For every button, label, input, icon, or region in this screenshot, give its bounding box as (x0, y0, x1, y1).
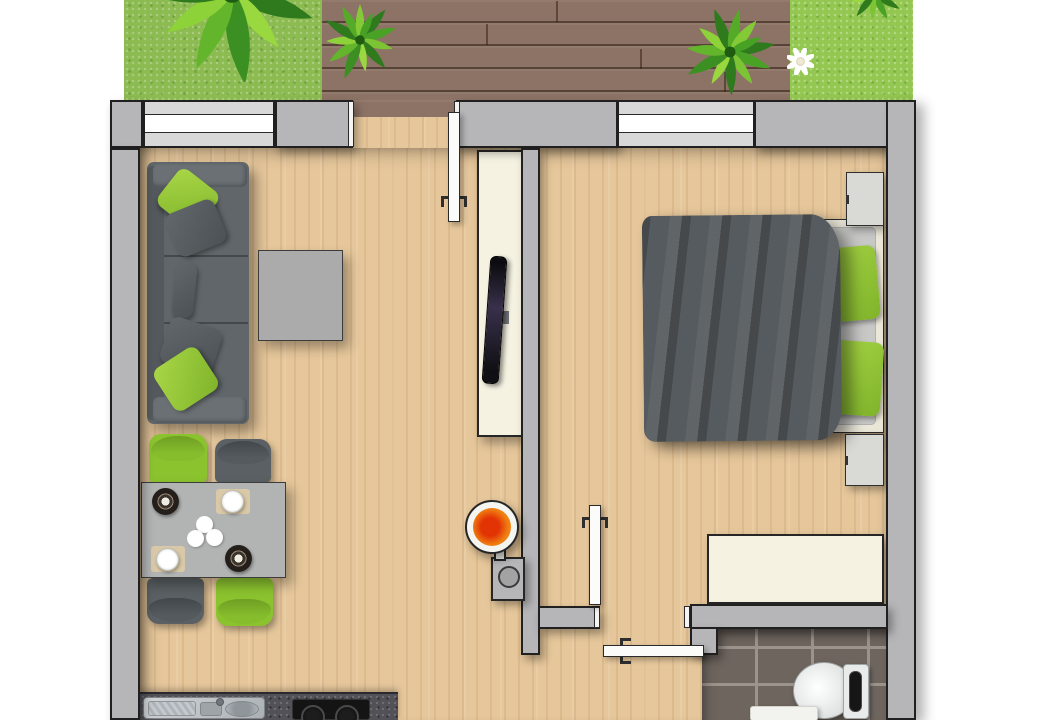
bedroom-window (617, 100, 755, 148)
cooktop-burner (335, 705, 359, 720)
floor-plan-canvas (0, 0, 1040, 720)
terrace-door-jamb (348, 101, 354, 147)
wall-stub-hall (538, 606, 600, 629)
place-setting-dark (225, 545, 252, 572)
stove-base-cap (498, 566, 520, 588)
chair-backrest (218, 599, 270, 624)
sink-bowl-round (225, 701, 259, 717)
nightstand-bottom (845, 434, 884, 486)
deck-plank-seam (556, 1, 558, 22)
terrace-door-leaf (448, 112, 460, 222)
wall-top-mid (275, 100, 353, 148)
living-room-window (143, 100, 275, 148)
bedroom-door-leaf (589, 505, 601, 605)
bedroom-door-jamb (684, 606, 690, 628)
sofa-seat-seam (164, 255, 248, 257)
nightstand-handle (846, 195, 849, 204)
window-sill-outer (145, 102, 273, 115)
chair-backrest (217, 441, 269, 464)
wall-right-exterior (886, 100, 916, 720)
stove-fire-glow (473, 508, 511, 546)
deck-plank-seam (486, 24, 488, 45)
terrace-threshold-deck (352, 100, 458, 117)
place-setting-white (156, 548, 179, 571)
wall-top-center (456, 100, 618, 148)
sink-drainboard (148, 701, 196, 716)
sink-faucet (216, 698, 224, 706)
window-sill-inner (619, 133, 753, 146)
bath-mat (750, 706, 818, 720)
deck-plant-right-icon (684, 6, 776, 98)
bed-duvet (642, 214, 842, 442)
bedroom-dresser (707, 534, 884, 604)
dining-table (141, 482, 286, 578)
place-setting-white (221, 490, 244, 513)
nightstand-top (846, 172, 884, 226)
dining-chair-green-top-left (149, 434, 207, 483)
toilet-lid-slot (849, 671, 862, 712)
bathroom-door-leaf (603, 645, 704, 657)
chair-backrest (151, 436, 204, 461)
wall-left-exterior (110, 148, 140, 720)
dining-chair-gray-bottom-left (147, 578, 204, 624)
deck-plank-seam (640, 49, 642, 69)
chair-backrest (149, 598, 201, 622)
window-sill-inner (145, 133, 273, 146)
nightstand-handle (845, 456, 848, 465)
flower-centerpiece (187, 530, 204, 547)
window-glass (145, 115, 273, 133)
wall-top-left-pier (110, 100, 143, 148)
sofa-armrest-bottom (153, 397, 247, 423)
wall-bedroom-south (690, 604, 888, 629)
large-bush-icon (142, 0, 322, 82)
tv-stand-nub (503, 311, 509, 324)
cooktop-burner (301, 705, 325, 720)
wall-top-right (754, 100, 888, 148)
bedroom-door-jamb (594, 607, 600, 628)
kitchen-sink (143, 697, 265, 719)
dining-chair-green-bottom-right (216, 578, 273, 626)
flower-centerpiece (206, 529, 223, 546)
terrace-threshold-floor (352, 117, 458, 148)
cooktop (292, 699, 370, 720)
coffee-table (258, 250, 343, 341)
window-glass (619, 115, 753, 133)
window-sill-outer (619, 102, 753, 115)
small-bush-icon (844, 0, 904, 24)
deck-plant-left-icon (320, 0, 400, 80)
place-setting-dark (152, 488, 179, 515)
daisy-flower-icon (787, 48, 814, 75)
dining-chair-gray-top-right (215, 439, 271, 483)
